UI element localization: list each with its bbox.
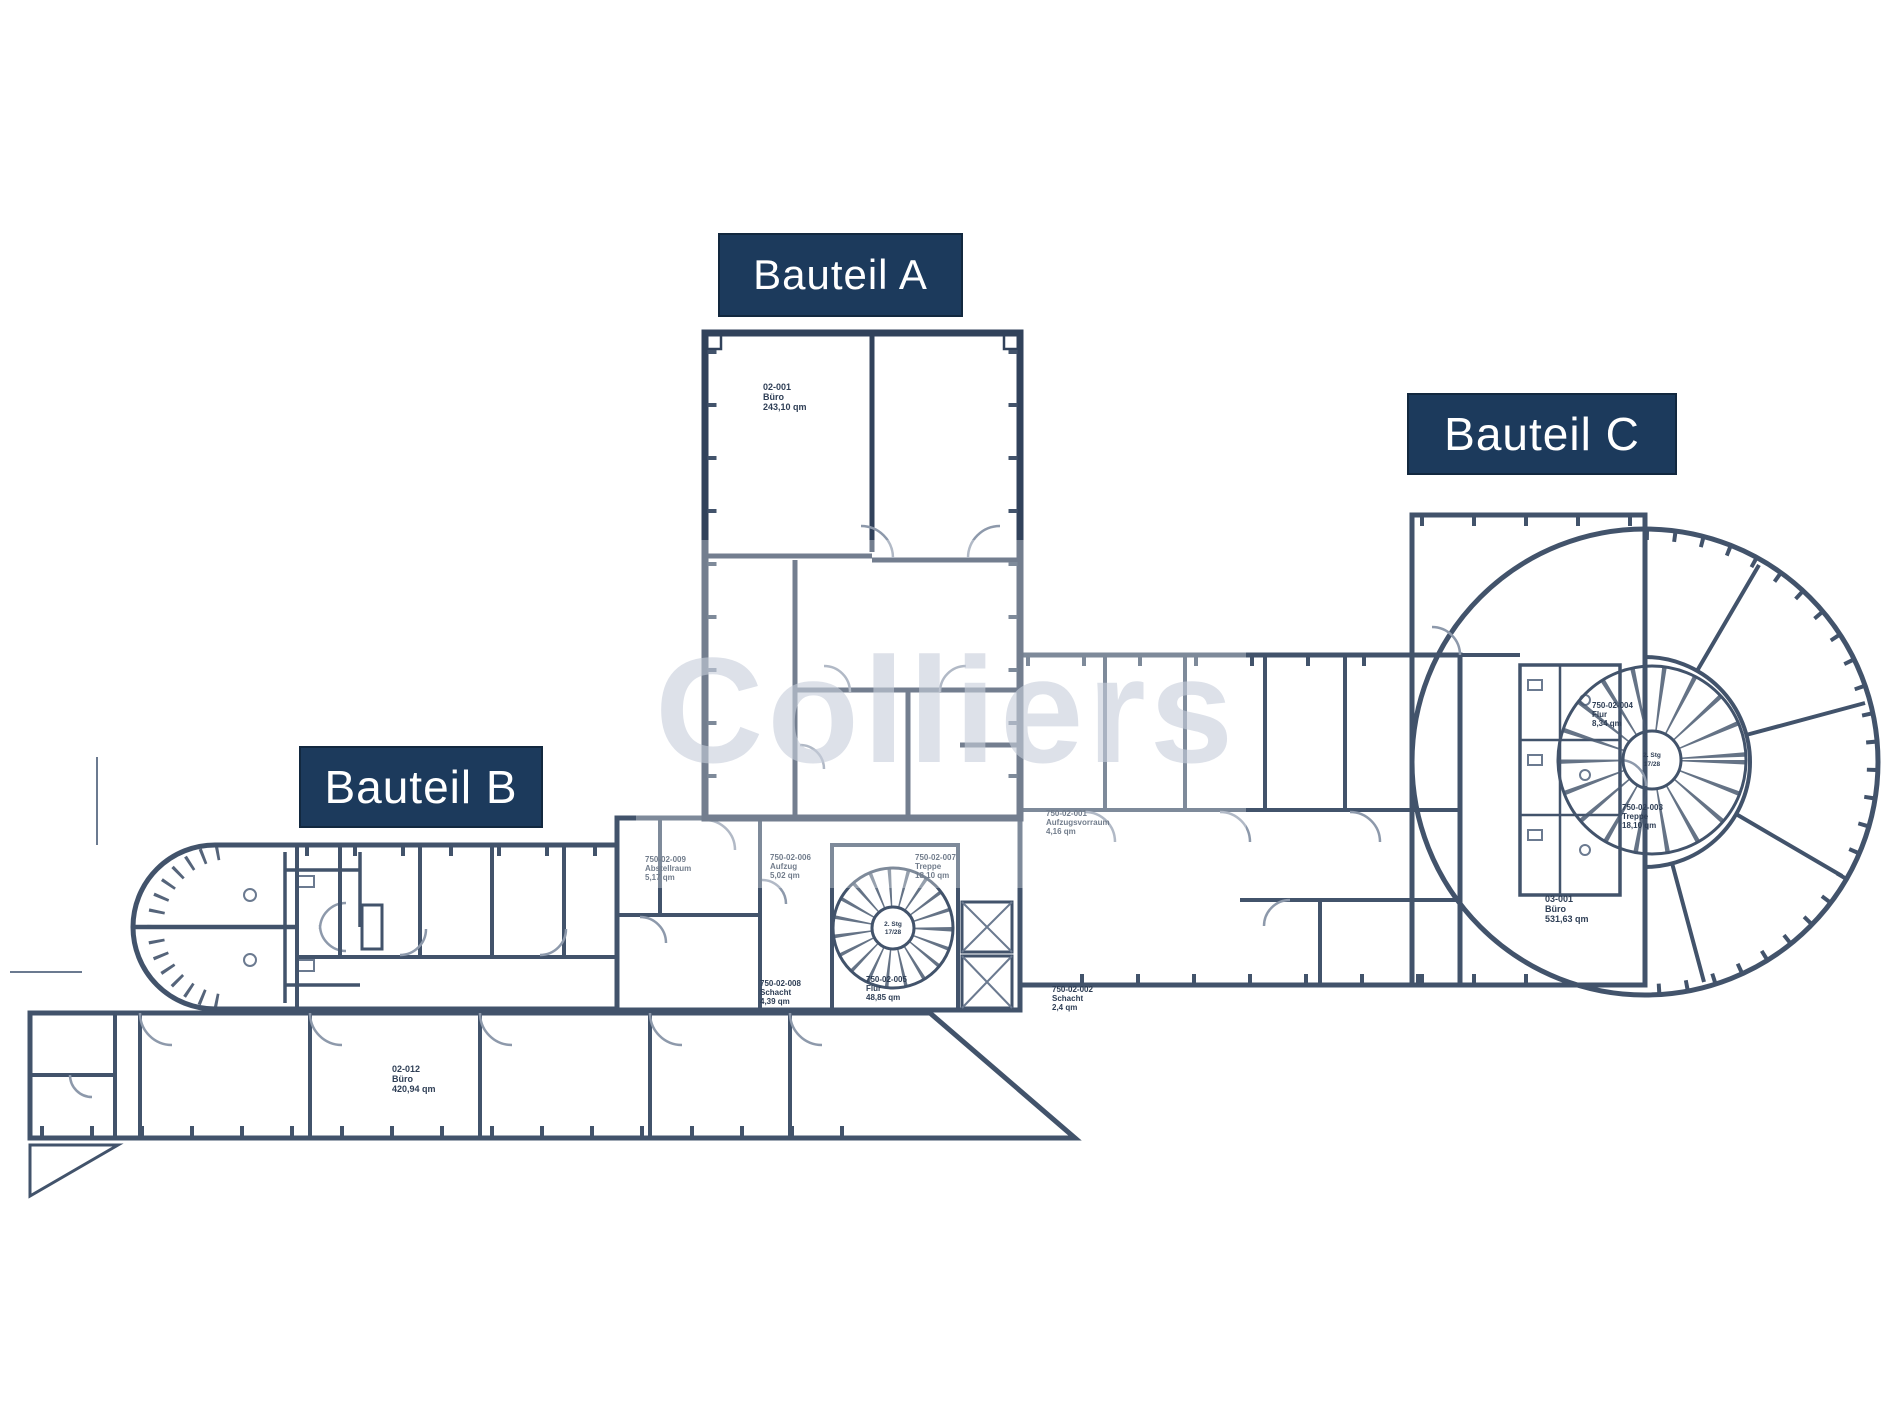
door-arc <box>400 929 566 955</box>
svg-text:8,34 qm: 8,34 qm <box>1592 719 1622 728</box>
stair-core-label: 17/28 <box>1644 761 1661 768</box>
svg-text:Flur: Flur <box>866 984 881 993</box>
svg-text:Büro: Büro <box>1545 904 1566 914</box>
bauteil-a-label: Bauteil A <box>718 233 963 317</box>
building-b-corner-stub <box>30 1145 118 1196</box>
svg-text:03-001: 03-001 <box>1545 894 1573 904</box>
bauteil-b-label: Bauteil B <box>299 746 543 828</box>
building-b-lower-band <box>30 1013 1075 1138</box>
room-label-mid-schacht: 750-02-002 Schacht 2,4 qm <box>1052 985 1093 1012</box>
svg-text:Schacht: Schacht <box>760 988 791 997</box>
svg-text:750-02-002: 750-02-002 <box>1052 985 1093 994</box>
bauteil-c-label: Bauteil C <box>1407 393 1677 475</box>
room-label-c-office: 03-001 Büro 531,63 qm <box>1545 894 1589 924</box>
stair-core-label: 2. Stg <box>884 921 902 928</box>
floorplan-svg: 2. Stg 17/28 750-02-009 Abstellraum 5,17… <box>0 0 1900 1425</box>
svg-text:750-02-004: 750-02-004 <box>1592 701 1633 710</box>
svg-text:750-02-008: 750-02-008 <box>760 979 801 988</box>
watermark-text: Colliers <box>655 626 1237 794</box>
svg-text:48,85 qm: 48,85 qm <box>866 993 900 1002</box>
cap-wc-rooms <box>133 852 382 1003</box>
svg-text:2,4 qm: 2,4 qm <box>1052 1003 1077 1012</box>
svg-text:243,10 qm: 243,10 qm <box>763 402 807 412</box>
watermark: Colliers <box>636 540 1246 888</box>
stair-core-label: 2. Stg <box>1643 752 1661 759</box>
stair-core-label: 17/28 <box>885 929 902 936</box>
svg-text:750-02-003: 750-02-003 <box>1622 803 1663 812</box>
svg-text:18,10 qm: 18,10 qm <box>1622 821 1656 830</box>
svg-text:4,39 qm: 4,39 qm <box>760 997 790 1006</box>
door-arc <box>320 903 346 951</box>
svg-text:531,63 qm: 531,63 qm <box>1545 914 1589 924</box>
svg-text:Treppe: Treppe <box>1622 812 1649 821</box>
svg-text:Schacht: Schacht <box>1052 994 1083 1003</box>
room-label-a-office: 02-001 Büro 243,10 qm <box>763 382 807 412</box>
rotunda-window-teeth <box>1645 534 1873 990</box>
svg-text:Flur: Flur <box>1592 710 1607 719</box>
building-c-bar <box>1412 515 1645 985</box>
shaft-box <box>962 902 1012 1008</box>
door-arc <box>70 1013 822 1097</box>
svg-text:750-02-005: 750-02-005 <box>866 975 907 984</box>
svg-text:02-012: 02-012 <box>392 1064 420 1074</box>
room-label-b-schacht: 750-02-008 Schacht 4,39 qm <box>760 979 801 1006</box>
c-wc-rooms <box>1520 665 1620 895</box>
room-label-c-flur: 750-02-004 Flur 8,34 qm <box>1592 701 1633 728</box>
svg-text:Büro: Büro <box>392 1074 413 1084</box>
svg-text:Büro: Büro <box>763 392 784 402</box>
svg-text:420,94 qm: 420,94 qm <box>392 1084 436 1094</box>
site-line <box>10 757 97 972</box>
room-label-b-office: 02-012 Büro 420,94 qm <box>392 1064 436 1094</box>
room-label-c-treppe: 750-02-003 Treppe 18,10 qm <box>1622 803 1663 830</box>
floorplan-page: 2. Stg 17/28 750-02-009 Abstellraum 5,17… <box>0 0 1900 1425</box>
svg-text:02-001: 02-001 <box>763 382 791 392</box>
bauteil-c-plan: 2. Stg 17/28 750-02-004 Flur 8,34 qm 750… <box>1412 515 1878 995</box>
